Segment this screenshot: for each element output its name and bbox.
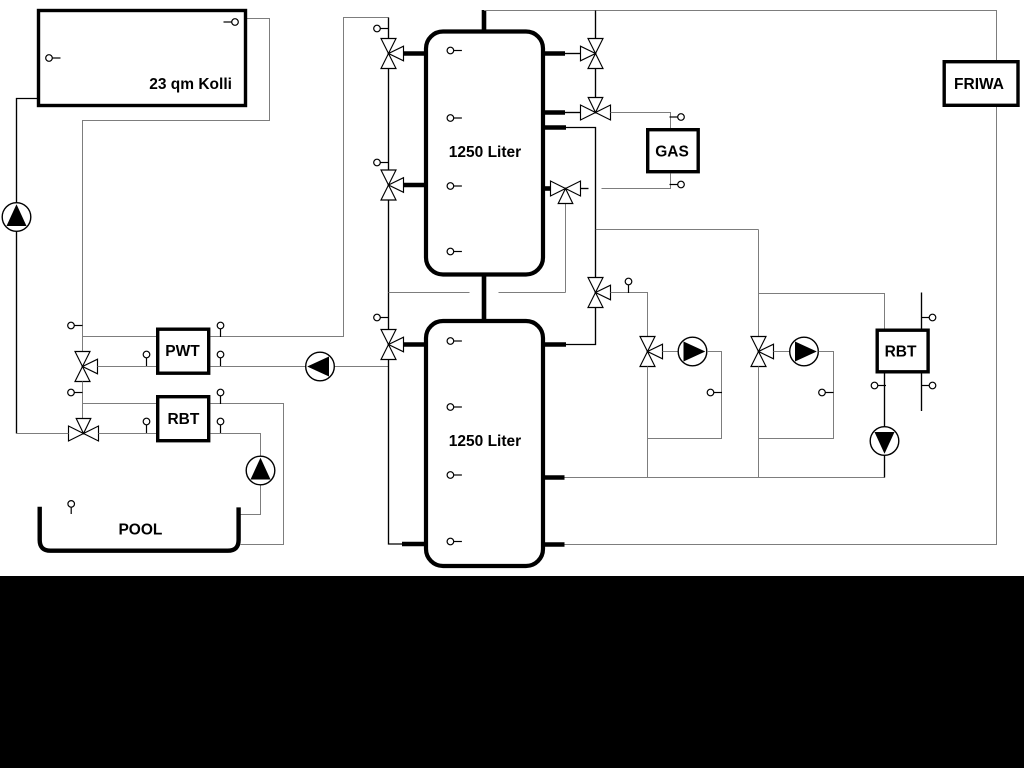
svg-text:FRIWA: FRIWA bbox=[954, 76, 1004, 93]
svg-text:1250 Liter: 1250 Liter bbox=[449, 433, 521, 450]
svg-text:23 qm Kolli: 23 qm Kolli bbox=[149, 76, 232, 93]
svg-text:1250 Liter: 1250 Liter bbox=[449, 144, 521, 161]
svg-text:RBT: RBT bbox=[167, 411, 199, 428]
svg-text:POOL: POOL bbox=[118, 522, 162, 539]
svg-text:PWT: PWT bbox=[165, 343, 200, 360]
svg-text:GAS: GAS bbox=[655, 143, 689, 160]
svg-text:RBT: RBT bbox=[885, 344, 917, 361]
